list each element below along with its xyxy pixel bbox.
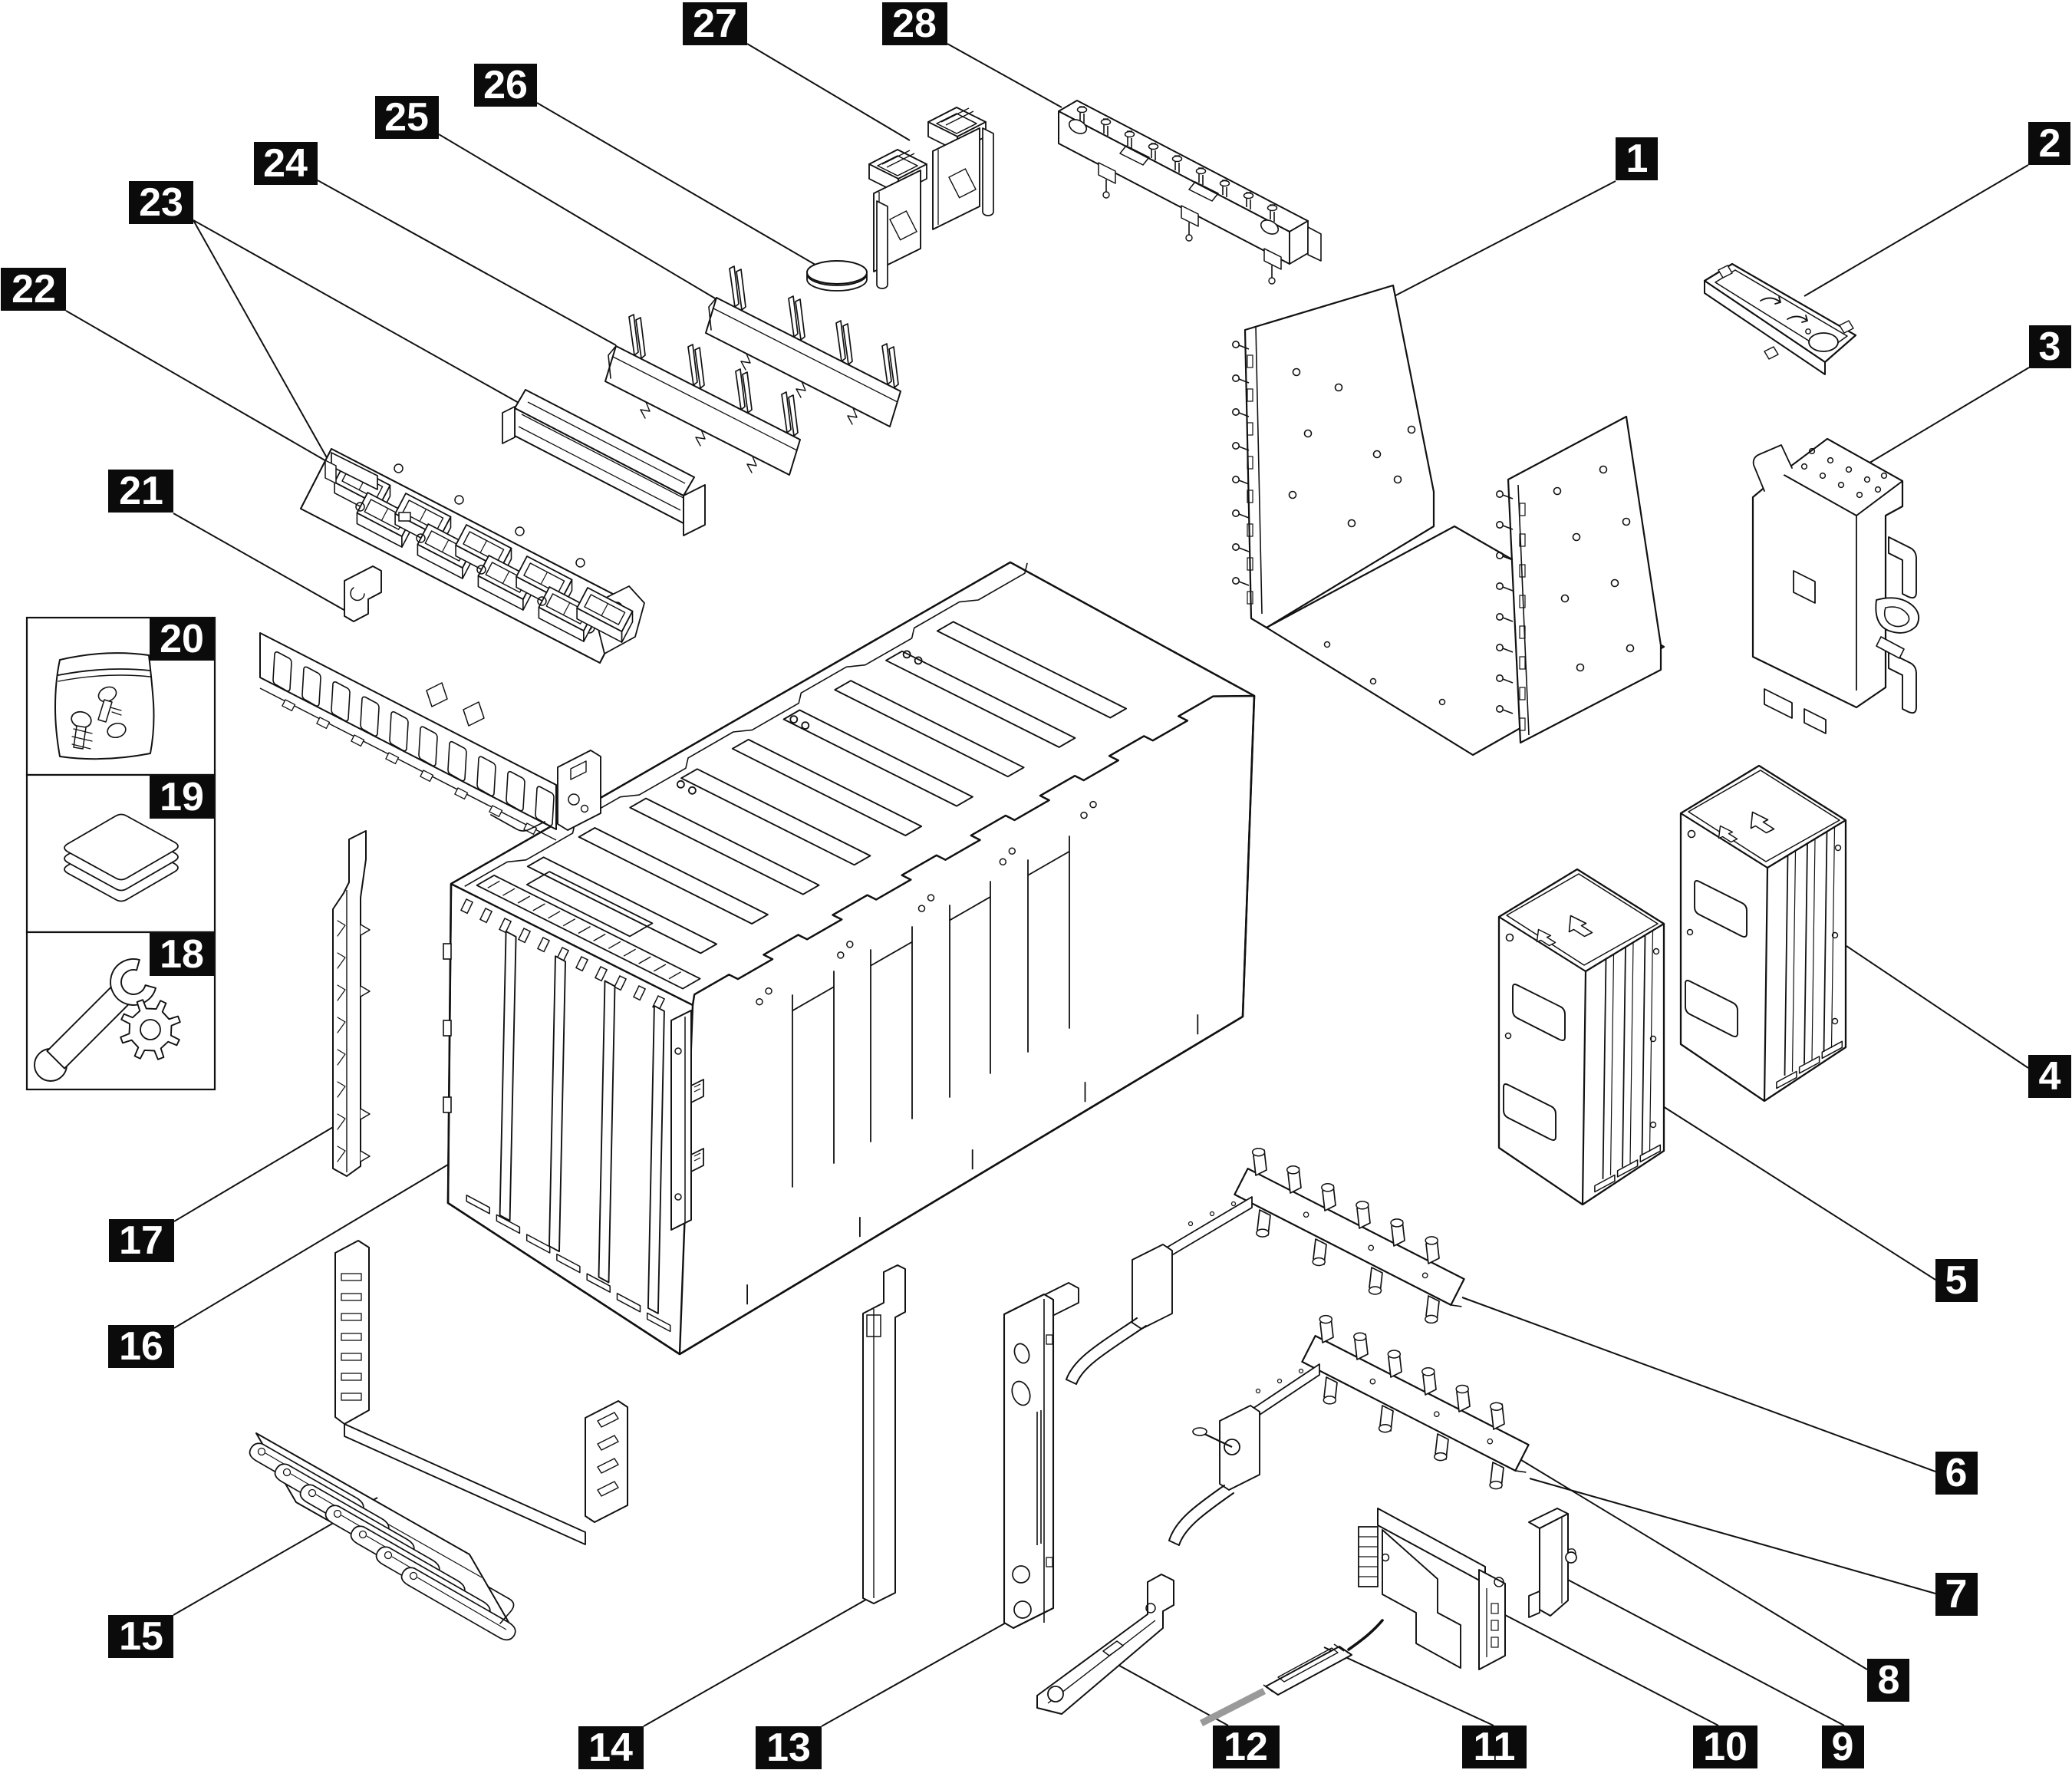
svg-text:2: 2 [2039,121,2061,166]
svg-text:24: 24 [263,141,308,186]
svg-text:28: 28 [892,2,937,46]
svg-text:5: 5 [1945,1258,1968,1303]
svg-text:9: 9 [1832,1725,1854,1769]
svg-text:19: 19 [160,775,204,819]
svg-text:27: 27 [693,2,737,46]
svg-text:6: 6 [1945,1451,1968,1495]
svg-text:8: 8 [1878,1658,1900,1702]
svg-text:1: 1 [1626,137,1649,181]
svg-text:25: 25 [384,95,429,140]
svg-text:15: 15 [119,1614,163,1659]
svg-text:10: 10 [1703,1725,1748,1769]
svg-text:21: 21 [119,469,163,513]
svg-text:18: 18 [160,932,204,977]
svg-text:3: 3 [2039,325,2061,369]
svg-text:4: 4 [2039,1054,2061,1099]
svg-text:16: 16 [119,1324,163,1369]
svg-text:22: 22 [12,267,56,311]
svg-text:23: 23 [139,180,183,225]
svg-text:20: 20 [160,617,204,661]
svg-text:17: 17 [119,1218,163,1263]
svg-text:13: 13 [766,1726,811,1770]
svg-text:11: 11 [1474,1725,1516,1769]
svg-text:14: 14 [588,1726,633,1770]
svg-text:7: 7 [1945,1572,1968,1617]
svg-text:26: 26 [483,63,528,107]
svg-text:12: 12 [1224,1725,1268,1769]
